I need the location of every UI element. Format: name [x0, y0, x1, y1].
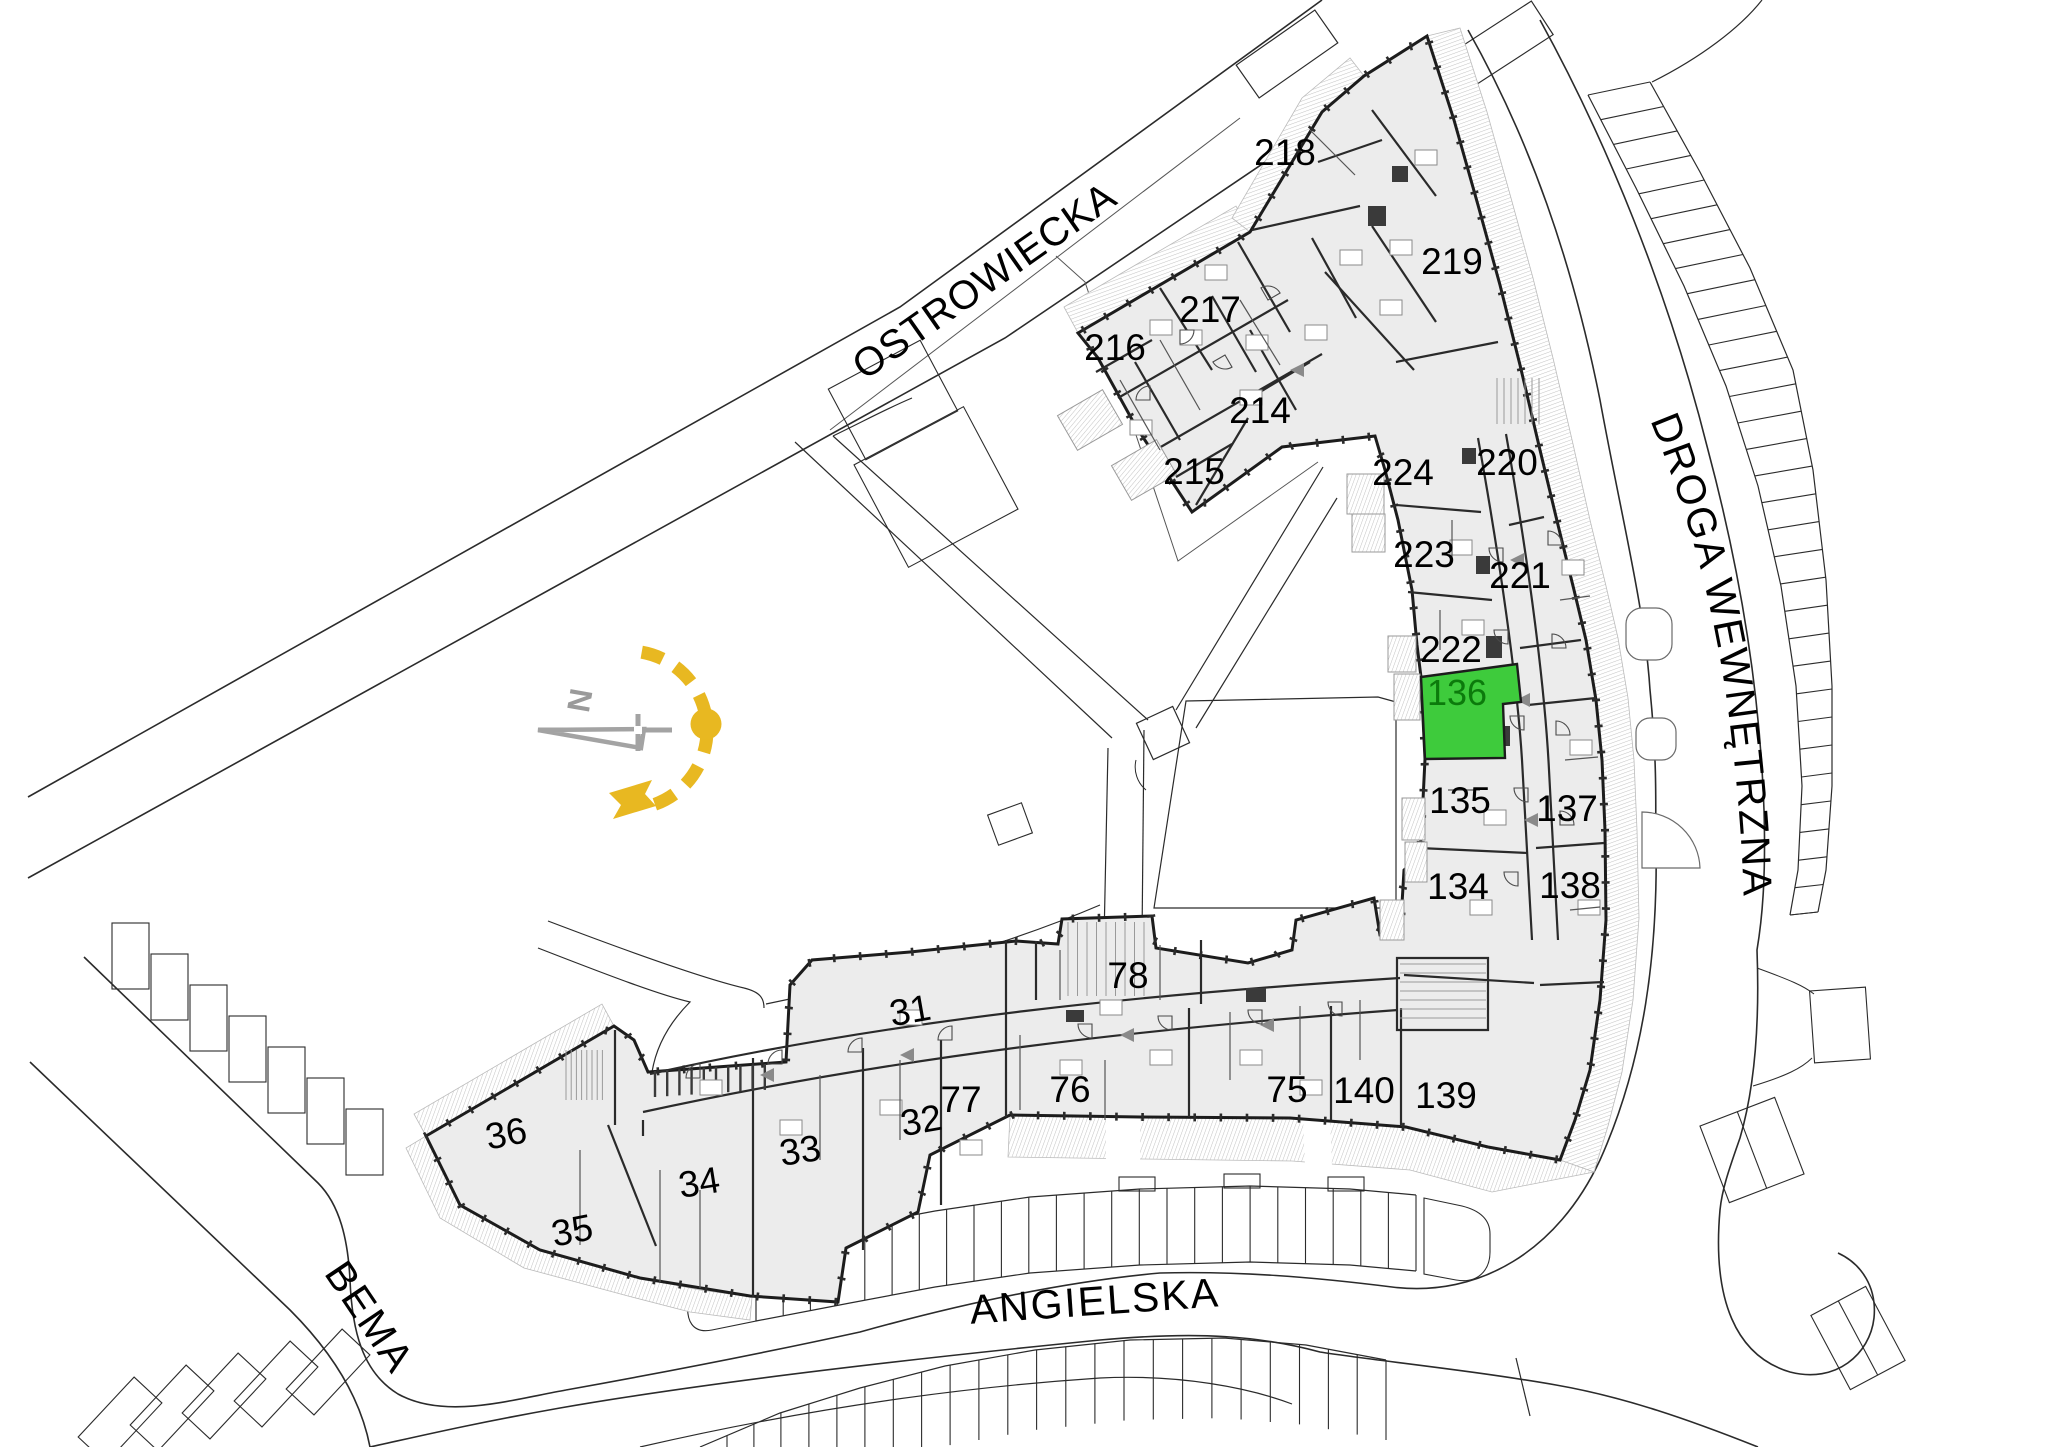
- svg-text:224: 224: [1372, 452, 1434, 493]
- svg-text:223: 223: [1393, 534, 1455, 575]
- svg-text:136: 136: [1427, 672, 1487, 713]
- svg-text:222: 222: [1420, 629, 1482, 670]
- svg-text:217: 217: [1179, 289, 1241, 330]
- svg-text:31: 31: [886, 987, 934, 1035]
- svg-text:218: 218: [1254, 132, 1316, 173]
- svg-text:34: 34: [676, 1159, 723, 1206]
- svg-text:220: 220: [1476, 442, 1538, 483]
- svg-text:35: 35: [548, 1206, 596, 1254]
- svg-text:216: 216: [1084, 327, 1146, 368]
- svg-text:76: 76: [1049, 1069, 1090, 1110]
- svg-text:215: 215: [1163, 451, 1225, 492]
- svg-text:36: 36: [482, 1109, 530, 1157]
- svg-text:32: 32: [897, 1097, 945, 1145]
- svg-text:140: 140: [1333, 1070, 1395, 1111]
- svg-text:135: 135: [1429, 780, 1491, 821]
- svg-text:78: 78: [1107, 955, 1148, 996]
- svg-text:138: 138: [1539, 865, 1601, 906]
- svg-text:221: 221: [1489, 555, 1551, 596]
- svg-text:33: 33: [777, 1127, 824, 1174]
- svg-text:134: 134: [1427, 866, 1489, 907]
- svg-text:214: 214: [1229, 390, 1291, 431]
- svg-text:137: 137: [1536, 788, 1598, 829]
- svg-text:219: 219: [1421, 241, 1483, 282]
- svg-text:77: 77: [940, 1079, 981, 1120]
- svg-text:75: 75: [1266, 1069, 1307, 1110]
- svg-text:139: 139: [1415, 1075, 1477, 1116]
